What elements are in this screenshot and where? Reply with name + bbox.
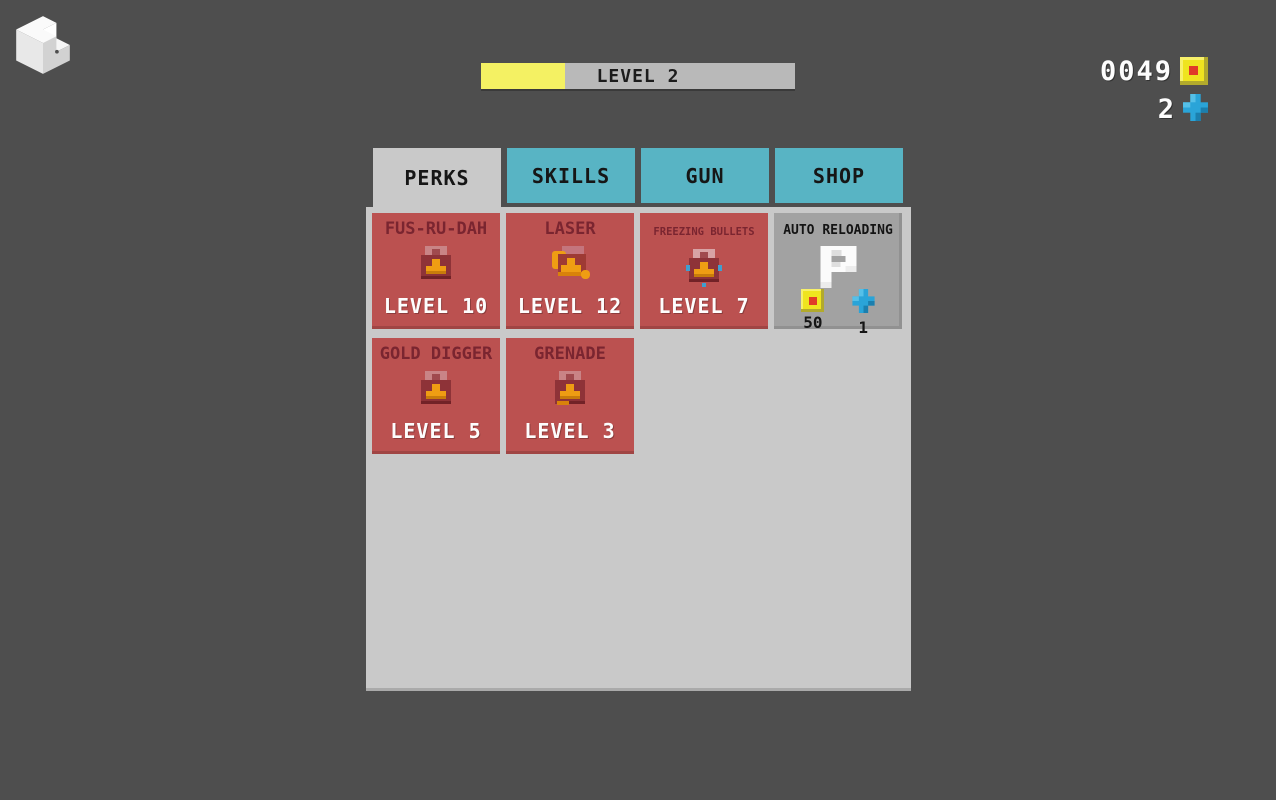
perk-title: FUS-RU-DAH [385, 220, 487, 238]
level-label: LEVEL 2 [481, 63, 795, 89]
tab-gun[interactable]: GUN [641, 148, 769, 203]
health-cross-icon [1183, 94, 1208, 125]
currency-panel: 0049 2 [1100, 57, 1208, 125]
perk-title: AUTO RELOADING [783, 222, 893, 240]
perk-title: GOLD DIGGER [380, 345, 493, 363]
coin-icon [801, 289, 824, 312]
perk-card-auto-reloading[interactable]: AUTO RELOADING [774, 213, 902, 329]
perk-level: LEVEL 5 [390, 421, 481, 441]
game-screen: LEVEL 2 0049 2 PERKS SKILLS GUN [0, 0, 1276, 800]
health-cross-icon [852, 289, 875, 317]
cross-cost: 1 [852, 289, 875, 336]
cross-balance: 2 [1158, 94, 1208, 125]
toolbox-laser-icon [550, 245, 590, 285]
cross-amount: 2 [1158, 96, 1176, 123]
perks-panel: FUS-RU-DAH LEVEL 10 LASER [366, 207, 911, 691]
perk-cost-row: 50 1 [774, 289, 902, 336]
perk-card-grid: FUS-RU-DAH LEVEL 10 LASER [366, 207, 911, 460]
level-progress-bar: LEVEL 2 [481, 63, 795, 89]
toolbox-freezing-icon [685, 248, 723, 288]
perk-level: LEVEL 10 [384, 296, 488, 316]
tab-shop[interactable]: SHOP [775, 148, 903, 203]
letter-a-icon [820, 247, 857, 287]
perk-title: GRENADE [534, 345, 606, 363]
toolbox-icon [417, 370, 455, 410]
tab-perks[interactable]: PERKS [373, 148, 501, 208]
perk-level: LEVEL 12 [518, 296, 622, 316]
perk-level: LEVEL 7 [658, 296, 749, 316]
perk-card-fus-ru-dah[interactable]: FUS-RU-DAH LEVEL 10 [372, 213, 500, 329]
perk-card-grenade[interactable]: GRENADE LEVEL 3 [506, 338, 634, 454]
cross-cost-amount: 1 [858, 320, 868, 336]
coin-icon [1180, 57, 1208, 85]
coin-cost-amount: 50 [803, 315, 822, 331]
perk-card-gold-digger[interactable]: GOLD DIGGER LEVEL 5 [372, 338, 500, 454]
perk-title: LASER [544, 220, 595, 238]
tab-bar: PERKS SKILLS GUN SHOP [373, 148, 903, 208]
coin-amount: 0049 [1100, 58, 1173, 85]
cube-logo-icon [14, 12, 72, 80]
perk-level: LEVEL 3 [524, 421, 615, 441]
tab-skills[interactable]: SKILLS [507, 148, 635, 203]
toolbox-icon [417, 245, 455, 285]
perk-title: FREEZING BULLETS [653, 223, 754, 241]
perk-card-laser[interactable]: LASER LEVEL 12 [506, 213, 634, 329]
perk-card-freezing-bullets[interactable]: FREEZING BULLETS LEVEL [640, 213, 768, 329]
toolbox-icon [551, 370, 589, 410]
coin-cost: 50 [801, 289, 824, 331]
coin-balance: 0049 [1100, 57, 1208, 85]
